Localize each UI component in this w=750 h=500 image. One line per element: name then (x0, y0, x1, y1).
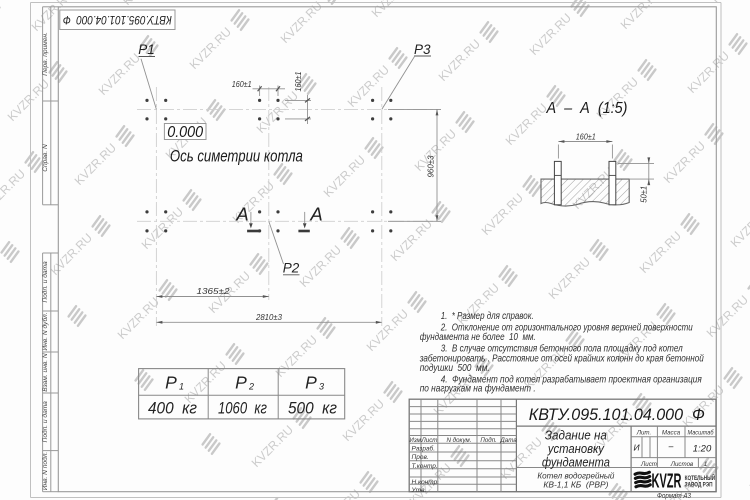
svg-text:KVZR.RU: KVZR.RU (704, 293, 750, 340)
svg-text:P2: P2 (283, 261, 300, 276)
svg-text:KVZR.RU: KVZR.RU (661, 139, 708, 186)
svg-text:KVZR.RU: KVZR.RU (479, 191, 526, 238)
svg-text:подушки 500 мм.: подушки 500 мм. (420, 363, 490, 374)
svg-text:Н.контр.: Н.контр. (412, 479, 440, 486)
svg-text:Масштаб: Масштаб (688, 430, 714, 437)
svg-text:КВТУ.095.101.04.000 Ф: КВТУ.095.101.04.000 Ф (529, 405, 705, 424)
svg-text:Котел водогрейный: Котел водогрейный (537, 471, 615, 480)
svg-text:KVZR.RU: KVZR.RU (0, 167, 28, 214)
svg-text:Подп. и дата: Подп. и дата (41, 401, 49, 443)
svg-text:Подп. и дата: Подп. и дата (41, 261, 49, 303)
svg-text:Масса: Масса (662, 430, 681, 437)
svg-text:Инв. N подл.: Инв. N подл. (41, 452, 49, 491)
svg-text:KVZR.RU: KVZR.RU (340, 397, 387, 444)
svg-text:400 кг: 400 кг (148, 400, 197, 418)
svg-text:KVZR.RU: KVZR.RU (115, 295, 162, 342)
svg-text:KVZR.RU: KVZR.RU (364, 307, 411, 354)
svg-text:0.000: 0.000 (167, 124, 203, 141)
svg-text:1060 кг: 1060 кг (218, 400, 267, 418)
svg-text:по нагрузкам на фундамент .: по нагрузкам на фундамент . (420, 383, 536, 395)
svg-text:KVZR.RU: KVZR.RU (637, 229, 684, 276)
svg-text:фундамента: фундамента (542, 454, 610, 469)
svg-text:KVZR.RU: KVZR.RU (96, 51, 143, 98)
svg-text:KVZR.RU: KVZR.RU (546, 255, 593, 302)
svg-text:P: P (165, 373, 177, 393)
svg-text:KVZR.RU: KVZR.RU (503, 101, 550, 148)
svg-text:2810±3: 2810±3 (255, 312, 282, 322)
svg-text:KVZR.RU: KVZR.RU (685, 49, 732, 96)
svg-text:1: 1 (704, 461, 708, 468)
svg-text:KVZR.RU: KVZR.RU (345, 63, 392, 110)
svg-text:А: А (309, 204, 322, 225)
svg-text:960±3: 960±3 (426, 155, 436, 177)
svg-text:KVZR.RU: KVZR.RU (254, 89, 301, 136)
svg-text:3: 3 (319, 382, 324, 392)
svg-text:KVZR.RU: KVZR.RU (297, 243, 344, 290)
svg-text:фундамента не более 10 мм.: фундамента не более 10 мм. (420, 331, 536, 343)
svg-text:KVZR.RU: KVZR.RU (728, 203, 750, 250)
svg-text:P1: P1 (138, 42, 155, 57)
svg-text:KVZR.RU: KVZR.RU (48, 231, 95, 278)
svg-text:160±1: 160±1 (293, 71, 303, 91)
svg-text:И: И (634, 443, 641, 453)
svg-text:KVZR.RU: KVZR.RU (436, 37, 483, 84)
svg-text:P: P (235, 373, 247, 393)
svg-text:1: 1 (179, 382, 184, 392)
svg-text:Лит.: Лит. (636, 430, 652, 437)
svg-text:KVZR.RU: KVZR.RU (618, 0, 665, 32)
svg-text:Утв.: Утв. (411, 487, 427, 494)
svg-text:P: P (305, 373, 317, 393)
svg-text:KVZR.RU: KVZR.RU (5, 77, 52, 124)
svg-text:KVZR.RU: KVZR.RU (388, 217, 435, 264)
svg-text:P3: P3 (414, 42, 431, 57)
svg-text:Разраб.: Разраб. (412, 445, 436, 453)
svg-text:Перв. примен.: Перв. примен. (42, 32, 49, 76)
svg-text:Лист: Лист (640, 461, 657, 468)
svg-text:Пров.: Пров. (412, 454, 429, 461)
svg-text:Т.контр.: Т.контр. (412, 463, 438, 470)
svg-text:50±1: 50±1 (639, 186, 649, 203)
svg-text:Инв. N дубл.: Инв. N дубл. (41, 312, 49, 350)
svg-text:Лист: Лист (421, 437, 438, 444)
svg-text:KVZR.RU: KVZR.RU (369, 0, 416, 20)
svg-text:KVZR.RU: KVZR.RU (321, 153, 368, 200)
svg-text:КВ‑1,1 КБ (РВР): КВ‑1,1 КБ (РВР) (543, 481, 608, 490)
svg-text:–: – (668, 441, 674, 451)
svg-text:1:20: 1:20 (693, 443, 712, 454)
svg-text:КВТУ.095.101.04.000 Ф: КВТУ.095.101.04.000 Ф (63, 13, 172, 27)
svg-text:Формат А3: Формат А3 (657, 493, 691, 500)
svg-text:Ось симетрии котла: Ось симетрии котла (170, 148, 303, 166)
svg-text:Дата: Дата (499, 437, 517, 444)
svg-text:А: А (235, 204, 248, 225)
svg-text:А – А (1:5): А – А (1:5) (546, 100, 628, 117)
svg-text:1365±2: 1365±2 (197, 286, 230, 296)
svg-text:Справ. N: Справ. N (42, 144, 49, 172)
svg-text:Листов: Листов (670, 461, 694, 468)
svg-text:KVZR.RU: KVZR.RU (249, 423, 296, 470)
svg-text:1. * Размер для справок.: 1. * Размер для справок. (441, 311, 534, 322)
svg-text:KVZR: KVZR (652, 470, 682, 492)
svg-text:500 кг: 500 кг (288, 400, 337, 418)
svg-text:KVZR.RU: KVZR.RU (72, 141, 119, 188)
svg-text:N докум.: N докум. (446, 437, 471, 444)
svg-text:KVZR.RU: KVZR.RU (709, 0, 750, 6)
svg-text:ЗАВОД РЭП: ЗАВОД РЭП (685, 481, 713, 488)
svg-text:KVZR.RU: KVZR.RU (527, 11, 574, 58)
svg-text:KVZR.RU: KVZR.RU (187, 25, 234, 72)
svg-text:KVZR.RU: KVZR.RU (747, 447, 750, 494)
svg-text:160±1: 160±1 (576, 131, 596, 141)
svg-text:Подп.: Подп. (480, 437, 496, 444)
svg-text:Взам. инв. N: Взам. инв. N (42, 353, 49, 392)
svg-text:2: 2 (248, 382, 254, 392)
svg-text:160±1: 160±1 (232, 79, 252, 89)
